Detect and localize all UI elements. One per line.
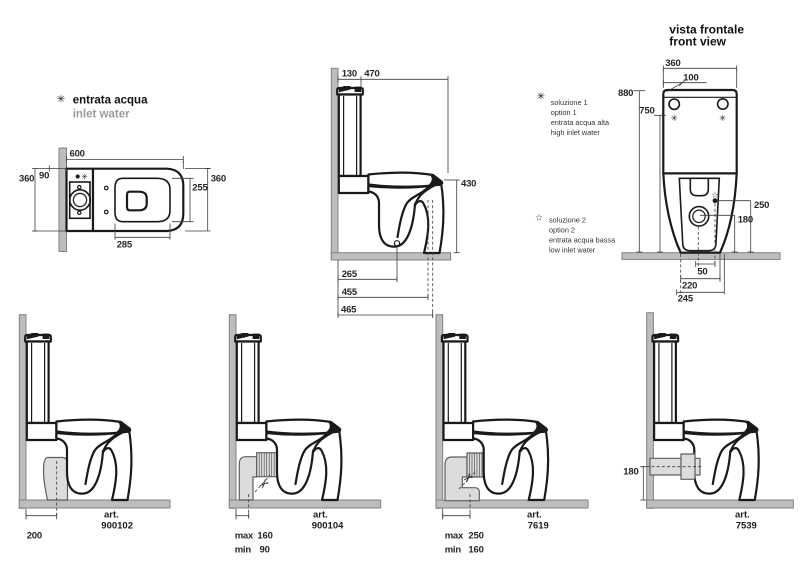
inlet-asterisk-icon: ✳: [719, 114, 726, 124]
side-dim-470: 470: [364, 69, 379, 80]
floor-drain-elbow: [44, 458, 68, 501]
option2-star-icon: ☆: [535, 214, 543, 224]
note1-line4: high inlet water: [551, 128, 601, 137]
installation-variant-4: 180 art. 7539: [623, 313, 793, 532]
wall-section: [436, 315, 443, 509]
plan-dim-90: 90: [39, 171, 49, 182]
inlet-asterisk-icon: ✳: [81, 173, 88, 182]
front-dim-750: 750: [639, 105, 654, 116]
drawing-canvas: ✳ entrata acqua inlet water ✳ 600 90 360…: [0, 0, 800, 579]
wall-section: [19, 315, 26, 509]
front-view-title-en: front view: [669, 35, 726, 49]
plan-dim-600: 600: [70, 149, 85, 160]
front-dim-250: 250: [754, 200, 769, 211]
inlet-asterisk-icon: ✳: [671, 114, 678, 124]
plan-dim-255: 255: [192, 183, 208, 194]
legend: ✳ entrata acqua inlet water: [57, 94, 148, 121]
front-view: vista frontale front view ✳ ✳ ☆ 360 100 …: [618, 23, 780, 305]
variant3-dim-max-label: max: [445, 531, 464, 542]
legend-subtitle: inlet water: [73, 108, 130, 120]
side-dim-265: 265: [342, 269, 358, 280]
side-view: 130 470 430 265 455 465: [331, 68, 476, 318]
note1-line3: entrata acqua alta: [551, 118, 610, 127]
front-dim-360: 360: [665, 58, 680, 69]
bowl-front: [663, 173, 736, 252]
inlet-point-dot: [76, 175, 80, 179]
wall-section: [59, 148, 67, 252]
variant2-dim-min-value: 90: [260, 544, 270, 555]
note2-line2: option 2: [549, 225, 575, 234]
installation-variant-2: ✂ max 160 min 90 art. 900104: [229, 315, 380, 556]
variant3-dim-min-value: 160: [468, 544, 483, 555]
variant2-dim-max-value: 160: [257, 531, 272, 542]
variant2-art-label: art.: [313, 509, 328, 520]
side-dim-430: 430: [461, 179, 476, 190]
side-dim-455: 455: [342, 287, 358, 298]
variant4-art-label: art.: [735, 509, 750, 520]
option-note-1: ✳ soluzione 1 option 1 entrata acqua alt…: [537, 91, 610, 137]
wall-section: [331, 68, 338, 260]
note1-line1: soluzione 1: [551, 98, 588, 107]
floor-section: [229, 500, 380, 508]
floor-section: [647, 500, 794, 508]
installation-variant-1: 200 art. 900102: [19, 315, 170, 542]
variant1-art-label: art.: [104, 509, 119, 520]
variant2-dim-max-label: max: [235, 531, 254, 542]
toilet-side-profile: [25, 333, 131, 500]
variant4-dim: 180: [623, 467, 638, 478]
drain-elbow: [239, 457, 256, 500]
scissors-icon: ✂: [255, 475, 272, 492]
front-dim-880: 880: [618, 88, 633, 99]
option1-asterisk-icon: ✳: [537, 91, 545, 102]
side-dim-465: 465: [341, 305, 357, 316]
note1-line2: option 1: [551, 108, 577, 117]
plan-view: ✳ 600 90 360 360 255 285: [19, 148, 226, 252]
variant3-dim-max-value: 250: [468, 531, 483, 542]
variant3-art-number: 7619: [528, 520, 549, 531]
front-dim-220: 220: [682, 280, 697, 291]
note2-line3: entrata acqua bassa: [549, 236, 616, 245]
note2-line4: low inlet water: [549, 246, 596, 255]
variant1-art-number: 900102: [101, 520, 133, 531]
front-dim-245: 245: [678, 294, 694, 305]
technical-drawing-sheet: ✳ entrata acqua inlet water ✳ 600 90 360…: [0, 0, 800, 579]
front-dim-50: 50: [697, 266, 707, 277]
plan-dim-360-left: 360: [19, 174, 34, 185]
front-dim-180: 180: [738, 214, 753, 225]
variant3-art-label: art.: [527, 509, 542, 520]
wall-section: [229, 315, 236, 509]
installation-variant-3: ✂ max 250 min 160 art. 7619: [436, 315, 588, 556]
plan-dim-285: 285: [117, 239, 133, 250]
legend-title: entrata acqua: [73, 94, 148, 106]
low-inlet-dot: [713, 198, 718, 203]
option-note-2: ☆ soluzione 2 option 2 entrata acqua bas…: [535, 214, 616, 255]
toilet-side-profile: [337, 86, 443, 253]
variant2-art-number: 900104: [312, 520, 344, 531]
side-dim-130: 130: [342, 69, 357, 80]
floor-section: [19, 500, 170, 508]
variant2-dim-min-label: min: [235, 544, 252, 555]
plan-dim-360-right: 360: [211, 174, 226, 185]
note2-line1: soluzione 2: [549, 215, 586, 224]
variant4-art-number: 7539: [736, 520, 757, 531]
low-inlet-star-icon: ☆: [711, 190, 718, 199]
front-dim-100: 100: [683, 72, 698, 83]
variant1-dim: 200: [27, 531, 42, 542]
cistern-front: [663, 90, 736, 173]
variant3-dim-min-label: min: [445, 544, 462, 555]
inlet-asterisk-icon: ✳: [57, 94, 66, 106]
